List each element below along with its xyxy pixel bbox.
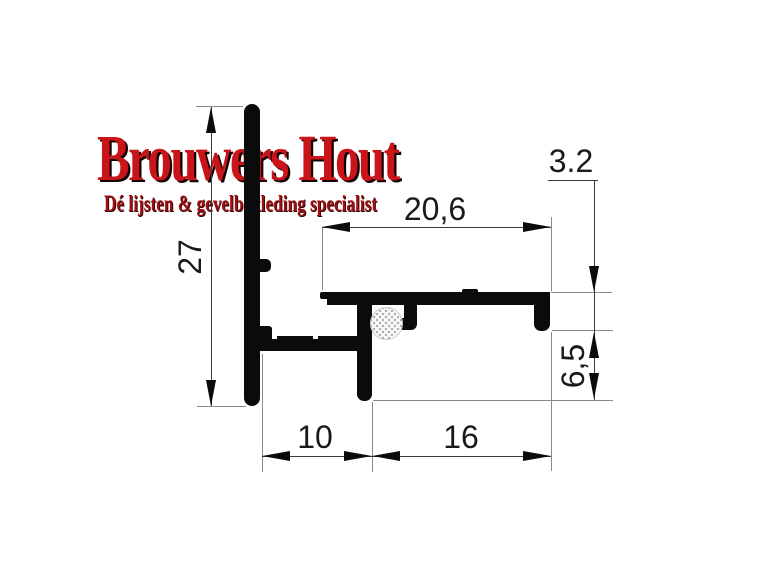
logo-subtitle: Dé lijsten & gevelbekleding specialist — [104, 191, 377, 216]
profile-leg-nub — [258, 326, 272, 337]
ext-line-base-mid — [372, 402, 373, 472]
profile-end-hook — [534, 292, 550, 331]
dim-line-height — [211, 107, 212, 406]
dim-line-topwidth — [322, 227, 551, 228]
profile-bottom-leg — [252, 336, 364, 351]
ext-line-topwidth-left — [322, 228, 323, 290]
profile-panel-nub — [258, 259, 271, 272]
profile-flange-tip — [320, 292, 332, 299]
arrow-height-bottom — [206, 380, 216, 406]
dimension-label-drip-height: 6,5 — [556, 331, 590, 401]
profile-top-flange — [327, 292, 550, 305]
ext-line-height-bottom — [197, 406, 246, 407]
dimension-label-base-left: 10 — [275, 420, 355, 454]
ext-line-right-lower — [551, 332, 552, 471]
rubber-gasket-circle — [370, 307, 403, 340]
ext-line-right-upper — [551, 217, 552, 291]
dimension-label-base-right: 16 — [421, 420, 501, 454]
dimension-label-height: 27 — [173, 227, 207, 287]
arrow-baseright-left — [372, 451, 400, 461]
dim-line-base — [262, 456, 551, 457]
arrow-topwidth-right — [523, 222, 551, 232]
arrow-hook-top — [589, 266, 599, 292]
drawing-canvas: Brouwers Hout Dé lijsten & gevelbekledin… — [0, 0, 768, 561]
profile-vertical-panel — [244, 104, 260, 406]
ref-line-flange-top — [551, 292, 612, 293]
dimension-label-hook-height: 3.2 — [526, 144, 616, 178]
profile-leg-notch-1 — [272, 336, 277, 339]
profile-leg-notch-2 — [313, 336, 318, 339]
arrow-baseright-right — [523, 451, 551, 461]
ext-line-height-top — [196, 106, 243, 107]
arrow-topwidth-left — [322, 222, 350, 232]
dimension-label-top-width: 20,6 — [375, 192, 495, 226]
profile-flange-ridge — [462, 289, 478, 294]
dim-leader-hook — [548, 180, 598, 181]
arrow-height-top — [206, 107, 216, 133]
